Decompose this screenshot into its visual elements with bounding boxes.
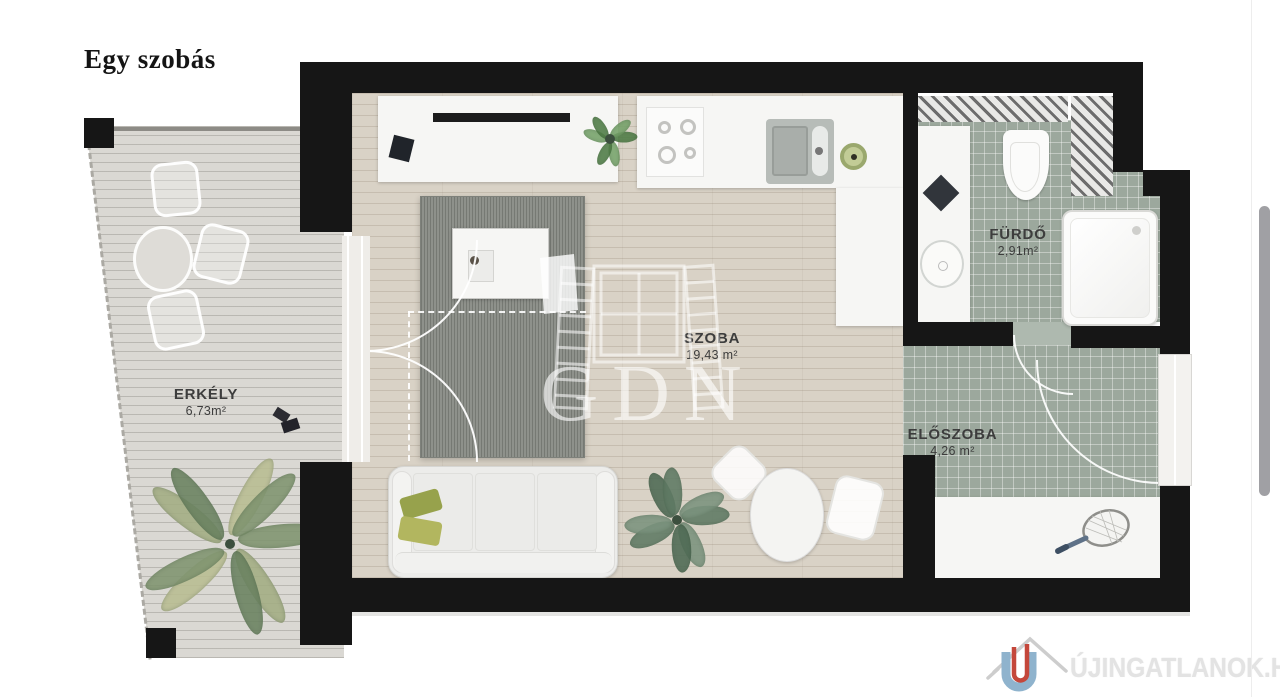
wall-segment	[903, 322, 1013, 346]
page-edge-line	[1251, 0, 1252, 697]
round-table	[750, 468, 824, 562]
wall-segment	[84, 118, 114, 148]
floorplan-page: Egy szobás	[0, 0, 1280, 697]
room-label-eloszoba: ELŐSZOBA 4,26 m²	[895, 426, 1010, 458]
sofa-back	[395, 552, 612, 573]
washbasin-icon	[920, 240, 964, 288]
burner	[680, 119, 696, 135]
shower-tray	[1062, 210, 1158, 326]
wall-segment	[1160, 486, 1190, 578]
shaft-hatch	[1071, 96, 1113, 196]
wall-segment	[903, 93, 918, 332]
balcony-chair	[145, 287, 208, 353]
shower-drain	[1132, 226, 1141, 235]
floor-plant-icon	[628, 468, 726, 572]
sink-basin	[772, 126, 808, 176]
balcony-deco-icon	[272, 408, 302, 438]
door-frame-line	[361, 236, 363, 462]
fruit-bowl-icon	[840, 143, 867, 170]
room-label-erkely: ERKÉLY 6,73m²	[150, 386, 262, 418]
french-door-frame	[342, 236, 370, 462]
plant-center	[605, 134, 615, 144]
wall-segment	[1160, 196, 1190, 354]
wall-segment	[300, 62, 352, 232]
wall-shadow	[352, 612, 1190, 616]
kitchen-sink	[766, 119, 834, 184]
outside-area	[1143, 93, 1190, 171]
balcony-table	[133, 226, 193, 292]
bathroom-vanity	[918, 126, 970, 322]
plant-center	[672, 515, 682, 525]
wall-segment	[352, 578, 1190, 612]
room-label-szoba: SZOBA 19,43 m²	[652, 330, 772, 362]
toilet-seat	[1010, 142, 1040, 192]
logo-text: ÚJINGATLANOK.HU	[1070, 652, 1280, 684]
logo-house-icon	[986, 626, 1070, 694]
tennis-racket-icon	[1030, 506, 1150, 564]
burner	[658, 146, 676, 164]
tv-bar	[433, 113, 570, 122]
burner	[658, 121, 671, 134]
palm-plant-icon	[138, 452, 322, 636]
sofa-cushion	[475, 473, 535, 551]
entry-door-line	[1174, 355, 1176, 485]
wall-segment	[1071, 326, 1160, 348]
scrollbar-thumb[interactable]	[1259, 206, 1270, 496]
sofa	[388, 466, 618, 578]
wall-segment	[1113, 62, 1143, 172]
shaft-hatch	[918, 96, 1068, 122]
small-plant-icon	[584, 110, 636, 168]
bowl-center	[851, 154, 857, 160]
basin-drain	[938, 261, 948, 271]
door-frame-line	[347, 236, 349, 462]
plan-title: Egy szobás	[84, 44, 216, 75]
plant-center	[225, 539, 235, 549]
room-label-furdo: FÜRDŐ 2,91m²	[968, 226, 1068, 258]
entry-door	[1158, 354, 1192, 486]
ujingatlanok-logo: ÚJINGATLANOK.HU	[986, 626, 1266, 696]
balcony-chair	[149, 160, 202, 219]
faucet-icon	[815, 147, 823, 155]
wall-segment	[300, 462, 352, 645]
wall-segment	[1143, 170, 1190, 196]
kitchen-counter-return	[836, 188, 903, 326]
wall-segment	[300, 62, 1143, 93]
balcony-railing-top	[106, 127, 304, 131]
wall-segment	[903, 455, 935, 578]
burner	[684, 147, 696, 159]
cooktop-icon	[646, 107, 704, 177]
sofa-cushion	[537, 473, 597, 551]
